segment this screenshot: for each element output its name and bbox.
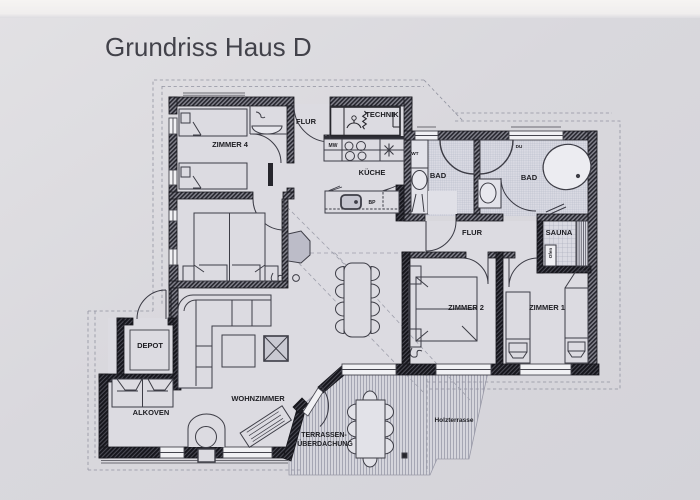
svg-text:DEPOT: DEPOT xyxy=(137,341,163,350)
svg-text:BAD: BAD xyxy=(430,171,447,180)
svg-text:ÜBERDACHUNG: ÜBERDACHUNG xyxy=(297,439,353,448)
svg-text:ALKOVEN: ALKOVEN xyxy=(133,408,170,417)
svg-text:TECHNIK: TECHNIK xyxy=(365,110,399,119)
svg-text:BAD: BAD xyxy=(521,173,538,182)
svg-text:TERRASSEN-: TERRASSEN- xyxy=(301,432,347,439)
svg-text:KÜCHE: KÜCHE xyxy=(359,168,386,177)
svg-text:BP: BP xyxy=(369,200,377,206)
svg-text:FLUR: FLUR xyxy=(462,228,483,237)
svg-text:MW: MW xyxy=(329,143,338,149)
svg-text:ZIMMER 2: ZIMMER 2 xyxy=(448,303,484,312)
svg-text:SAUNA: SAUNA xyxy=(546,228,573,237)
svg-text:ZIMMER 4: ZIMMER 4 xyxy=(212,140,249,149)
svg-text:Ofen: Ofen xyxy=(548,248,553,259)
svg-text:WT: WT xyxy=(411,151,418,156)
svg-text:DU: DU xyxy=(516,144,523,149)
svg-text:Grundriss Haus D: Grundriss Haus D xyxy=(105,32,312,62)
svg-text:Holzterrasse: Holzterrasse xyxy=(434,417,473,424)
svg-text:FLUR: FLUR xyxy=(296,117,317,126)
svg-text:WOHNZIMMER: WOHNZIMMER xyxy=(231,394,285,403)
svg-text:ZIMMER 1: ZIMMER 1 xyxy=(529,303,565,312)
